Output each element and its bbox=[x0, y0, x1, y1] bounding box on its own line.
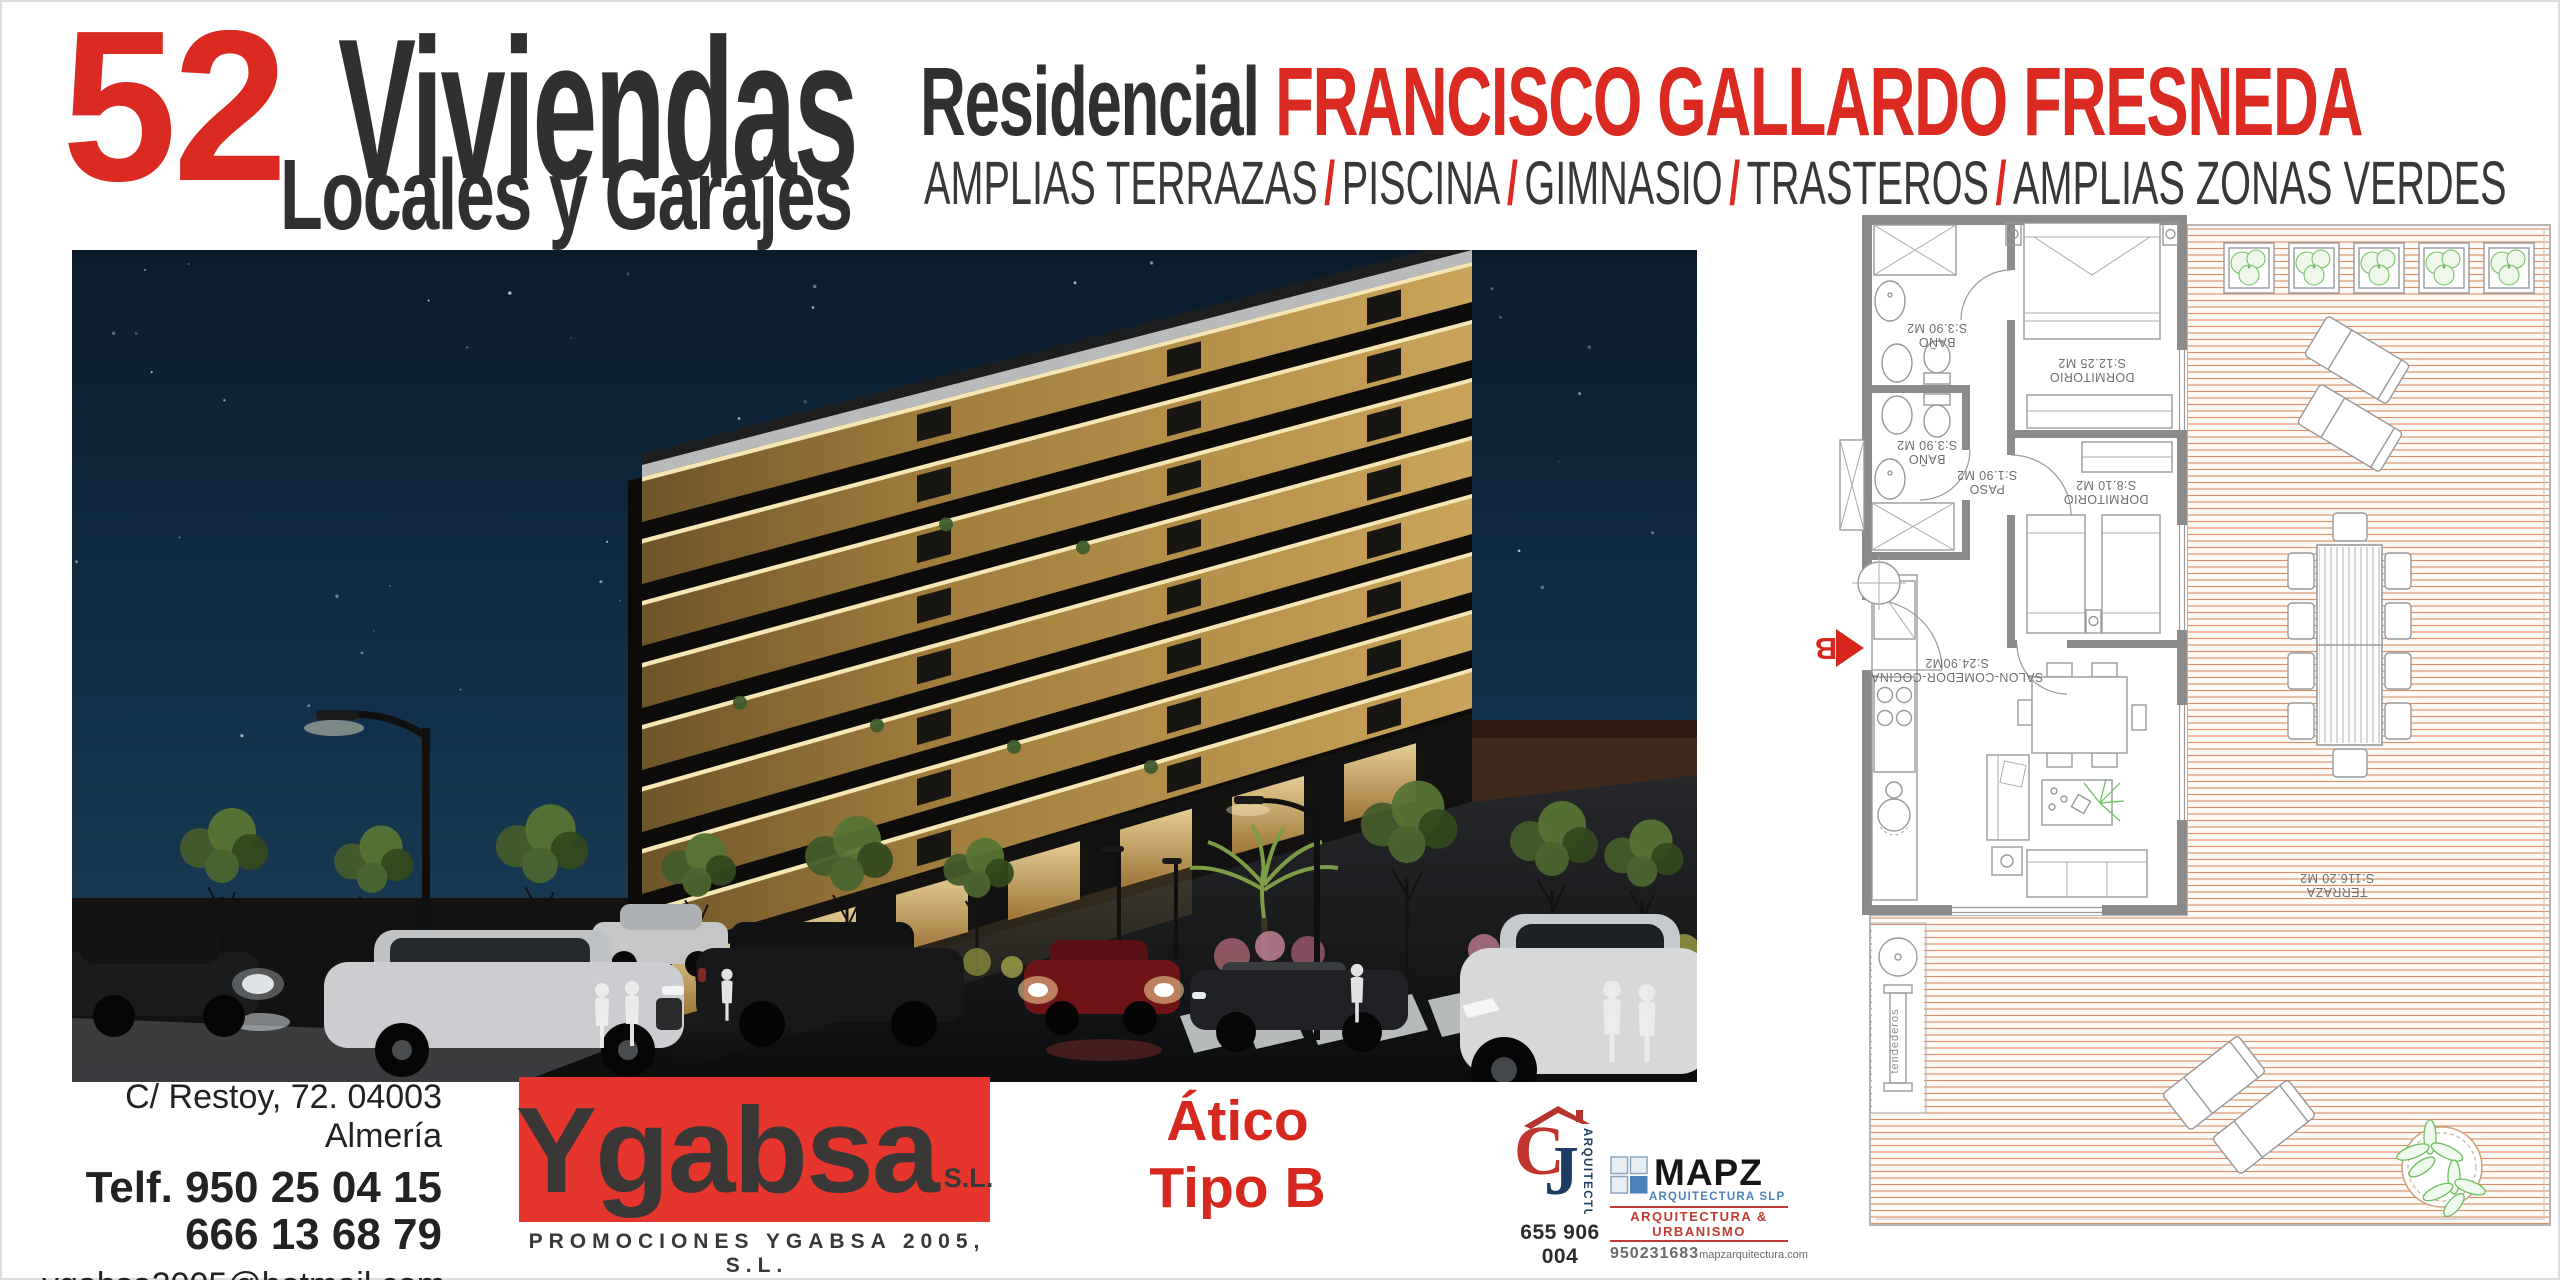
cj-phone: 655 906 004 bbox=[1514, 1221, 1606, 1269]
svg-text:S:3.90 M2: S:3.90 M2 bbox=[1897, 438, 1958, 452]
email: ygabsa2005@hotmail.com bbox=[42, 1266, 442, 1280]
unit-type-label: Ático Tipo B bbox=[1120, 1088, 1355, 1223]
amenity-piscina: PISCINA bbox=[1342, 149, 1501, 217]
residencial-name: FRANCISCO GALLARDO FRESNEDA bbox=[1275, 47, 2362, 156]
svg-text:S:3.90 M2: S:3.90 M2 bbox=[1907, 321, 1968, 335]
slash-separator: / bbox=[1989, 149, 2013, 217]
service-shaft bbox=[1840, 440, 1864, 530]
svg-text:PASO: PASO bbox=[1969, 482, 2004, 496]
unit-type-line2: Tipo B bbox=[1120, 1155, 1355, 1222]
svg-text:ARQUITECTURA: ARQUITECTURA bbox=[1581, 1128, 1593, 1214]
amenity-terrazas: AMPLIAS TERRAZAS bbox=[924, 149, 1318, 217]
contact-block: C/ Restoy, 72. 04003 Almería Telf. 950 2… bbox=[42, 1078, 442, 1280]
ygabsa-suffix: S.L. bbox=[944, 1163, 994, 1194]
mapz-squares-icon bbox=[1610, 1156, 1649, 1195]
mapz-web: mapzarquitectura.com bbox=[1699, 1249, 1808, 1261]
amenities-line: AMPLIAS TERRAZAS/PISCINA/GIMNASIO/TRASTE… bbox=[924, 148, 2507, 218]
phone-1: Telf. 950 25 04 15 bbox=[42, 1164, 442, 1211]
entrance-letter: B bbox=[1815, 631, 1837, 666]
svg-text:SALON-COMEDOR-COCINA: SALON-COMEDOR-COCINA bbox=[1870, 670, 2043, 684]
tendederos-area: tendederos bbox=[1870, 923, 1926, 1113]
svg-text:BAÑO: BAÑO bbox=[1908, 452, 1945, 466]
tendederos-label: tendederos bbox=[1889, 1008, 1901, 1073]
units-sublabel: Locales y Garajes bbox=[280, 138, 852, 253]
svg-text:DORMITORIO: DORMITORIO bbox=[2063, 492, 2148, 506]
amenity-gimnasio: GIMNASIO bbox=[1524, 149, 1722, 217]
mapz-logo: MAPZ ARQUITECTURA SLP ARQUITECTURA & URB… bbox=[1610, 1156, 1788, 1263]
svg-text:S:8.10 M2: S:8.10 M2 bbox=[2076, 478, 2137, 492]
ygabsa-name: Ygabsa bbox=[516, 1089, 938, 1211]
slash-separator: / bbox=[1500, 149, 1524, 217]
mapz-phone: 950231683 bbox=[1610, 1245, 1699, 1263]
amenity-trasteros: TRASTEROS bbox=[1747, 149, 1989, 217]
mapz-name: MAPZ bbox=[1654, 1156, 1785, 1189]
floor-plan: tendederos bbox=[1802, 215, 2557, 1237]
room-label-dorm2: DORMITORIO S:8.10 M2 bbox=[2063, 478, 2148, 506]
amenity-zonas-verdes: AMPLIAS ZONAS VERDES bbox=[2013, 149, 2507, 217]
svg-text:TERRAZA: TERRAZA bbox=[2306, 885, 2367, 899]
mapz-band: ARQUITECTURA & URBANISMO bbox=[1610, 1206, 1788, 1242]
entrance-arrow-icon bbox=[1836, 629, 1864, 667]
cj-arquitectura-logo: C J ARQUITECTURA 655 906 004 bbox=[1514, 1102, 1606, 1269]
ygabsa-logo: Ygabsa S.L. bbox=[519, 1077, 990, 1222]
residencial-title: Residencial FRANCISCO GALLARDO FRESNEDA bbox=[920, 46, 2362, 158]
svg-text:DORMITORIO: DORMITORIO bbox=[2049, 370, 2134, 384]
svg-text:S:12.25 M2: S:12.25 M2 bbox=[2058, 356, 2126, 370]
unit-type-line1: Ático bbox=[1120, 1088, 1355, 1155]
flyer-page: { "header": { "count": "52", "units": "V… bbox=[0, 0, 2560, 1280]
residencial-prefix: Residencial bbox=[920, 47, 1275, 156]
entrance-marker: B bbox=[1815, 629, 1864, 667]
address: C/ Restoy, 72. 04003 Almería bbox=[42, 1078, 442, 1156]
slash-separator: / bbox=[1318, 149, 1342, 217]
room-label-terraza: TERRAZA S:116.20 M2 bbox=[2300, 871, 2374, 899]
ygabsa-tagline: PROMOCIONES YGABSA 2005, S.L. bbox=[507, 1230, 1007, 1278]
svg-text:S:1.90 M2: S:1.90 M2 bbox=[1957, 468, 2018, 482]
phone-2: 666 13 68 79 bbox=[42, 1211, 442, 1258]
mapz-subtitle: ARQUITECTURA SLP bbox=[1649, 1191, 1785, 1203]
svg-text:J: J bbox=[1544, 1133, 1579, 1210]
room-label-dorm1: DORMITORIO S:12.25 M2 bbox=[2049, 356, 2134, 384]
slash-separator: / bbox=[1723, 149, 1747, 217]
units-count: 52 bbox=[62, 18, 284, 194]
red-light-reflection bbox=[1046, 1039, 1162, 1061]
svg-text:BAÑO: BAÑO bbox=[1918, 335, 1955, 349]
cj-logo-icon: C J ARQUITECTURA bbox=[1514, 1102, 1606, 1214]
svg-text:S:116.20 M2: S:116.20 M2 bbox=[2300, 871, 2374, 885]
terrace-planters bbox=[2224, 243, 2534, 293]
building-render-image bbox=[72, 250, 1697, 1082]
svg-text:S:24.90M2: S:24.90M2 bbox=[1925, 656, 1989, 670]
